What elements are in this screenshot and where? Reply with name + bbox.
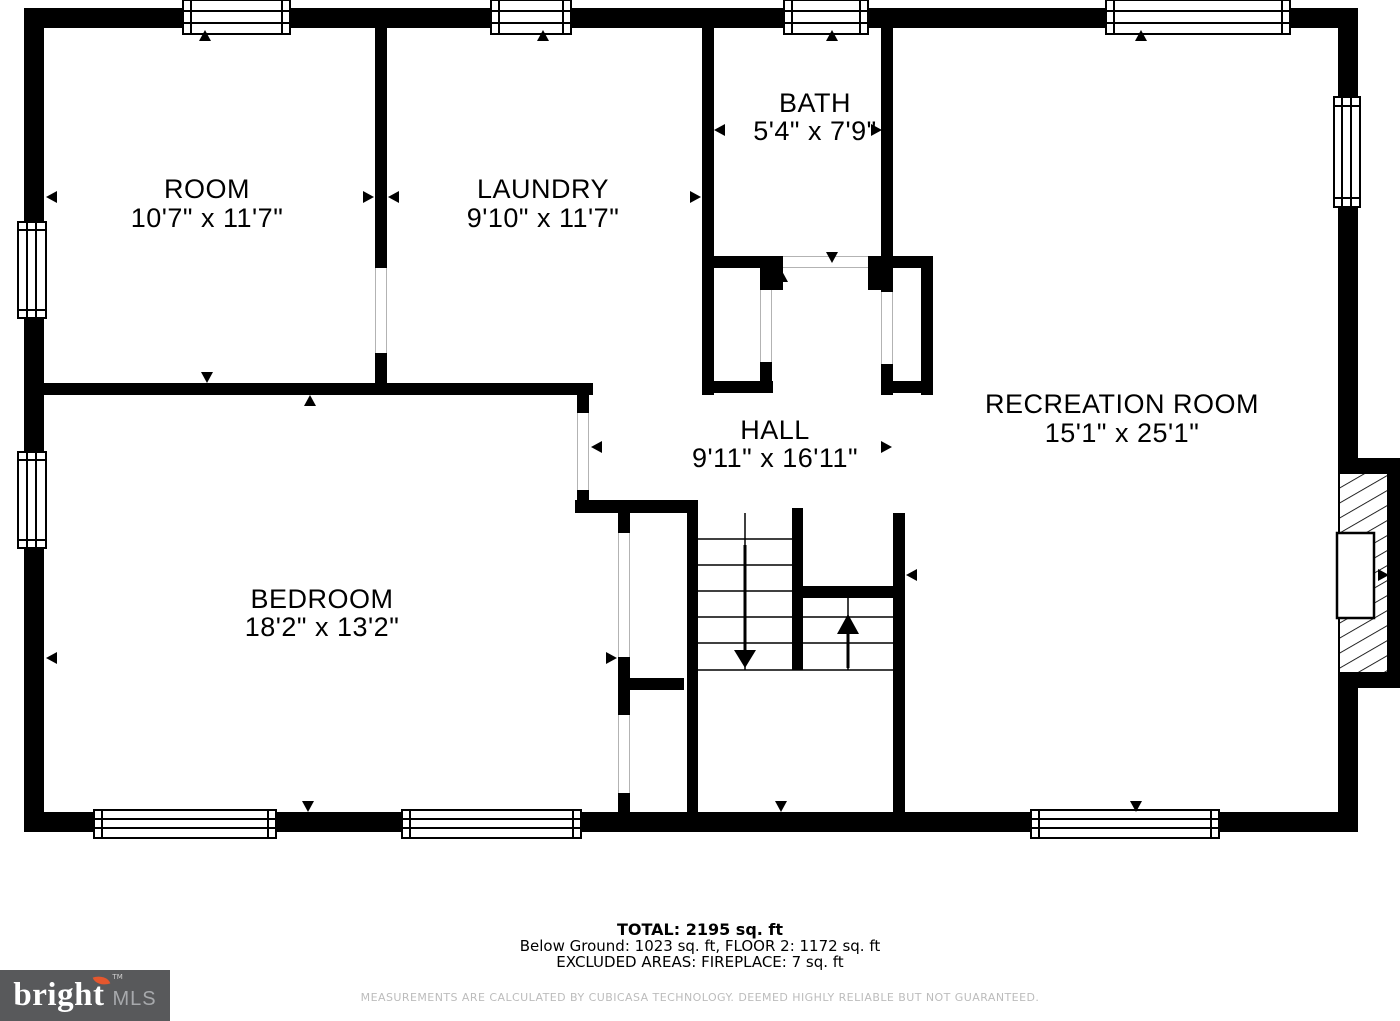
svg-text:10'7" x 11'7": 10'7" x 11'7"	[131, 203, 284, 233]
svg-text:9'10" x 11'7": 9'10" x 11'7"	[467, 203, 620, 233]
dim-arrow-right	[606, 652, 617, 664]
window-glyph	[491, 0, 571, 34]
window-glyph	[784, 0, 868, 34]
door-arrow-down	[201, 372, 213, 383]
window-glyph	[18, 222, 46, 318]
dim-arrow-right	[690, 191, 701, 203]
svg-text:HALL: HALL	[740, 415, 810, 445]
logo-mls-text: MLS	[112, 988, 156, 1011]
room-label-room: ROOM 10'7" x 11'7"	[131, 174, 284, 233]
dim-arrow-right	[881, 441, 892, 453]
door-arrow-down	[775, 801, 787, 812]
dim-arrow-left	[906, 569, 917, 581]
dim-arrow-left	[591, 441, 602, 453]
room-label-hall: HALL 9'11" x 16'11"	[692, 415, 858, 473]
window-glyph	[18, 452, 46, 548]
room-label-bedroom: BEDROOM 18'2" x 13'2"	[245, 584, 400, 642]
door-arrow-down	[826, 252, 838, 263]
window-glyph	[1031, 810, 1219, 838]
window-glyph	[402, 810, 581, 838]
window-glyph	[183, 0, 290, 34]
door-openings	[376, 257, 893, 794]
dim-arrow-left	[714, 124, 725, 136]
dim-arrow-left	[46, 652, 57, 664]
floor-plan-drawing: ROOM 10'7" x 11'7" LAUNDRY 9'10" x 11'7"…	[0, 0, 1400, 870]
window-glyph	[1334, 97, 1360, 207]
svg-text:18'2" x 13'2": 18'2" x 13'2"	[245, 612, 400, 642]
svg-text:15'1" x 25'1": 15'1" x 25'1"	[1045, 418, 1200, 448]
svg-text:LAUNDRY: LAUNDRY	[477, 174, 609, 204]
window-glyph	[1106, 0, 1290, 34]
stairs-down	[698, 513, 792, 670]
svg-text:BATH: BATH	[779, 88, 851, 118]
firebox	[1337, 533, 1374, 618]
dim-arrow-left	[46, 191, 57, 203]
floor-plan-page: ROOM 10'7" x 11'7" LAUNDRY 9'10" x 11'7"…	[0, 0, 1400, 1021]
bright-mls-logo: bright TM MLS	[0, 970, 170, 1021]
room-label-bath: BATH 5'4" x 7'9"	[753, 88, 877, 146]
excluded-areas: EXCLUDED AREAS: FIREPLACE: 7 sq. ft	[0, 954, 1400, 970]
room-label-laundry: LAUNDRY 9'10" x 11'7"	[467, 174, 620, 233]
svg-text:BEDROOM: BEDROOM	[250, 584, 393, 614]
svg-text:9'11" x 16'11": 9'11" x 16'11"	[692, 443, 858, 473]
dim-arrow-right	[363, 191, 374, 203]
svg-text:5'4" x 7'9": 5'4" x 7'9"	[753, 116, 877, 146]
trademark-symbol: TM	[112, 973, 122, 981]
floor-plan: ROOM 10'7" x 11'7" LAUNDRY 9'10" x 11'7"…	[0, 0, 1400, 870]
stairs-down-arrow	[734, 650, 756, 668]
area-breakdown: Below Ground: 1023 sq. ft, FLOOR 2: 1172…	[0, 938, 1400, 954]
svg-text:ROOM: ROOM	[164, 174, 250, 204]
door-arrow-up	[304, 395, 316, 406]
logo-brand-text: bright	[13, 979, 104, 1012]
dim-arrow-left	[388, 191, 399, 203]
room-label-recreation: RECREATION ROOM 15'1" x 25'1"	[985, 389, 1259, 448]
window-glyph	[94, 810, 276, 838]
door-arrow-down	[302, 801, 314, 812]
total-area: TOTAL: 2195 sq. ft	[0, 921, 1400, 938]
fireplace	[1337, 458, 1400, 688]
svg-text:RECREATION ROOM: RECREATION ROOM	[985, 389, 1259, 419]
area-summary: TOTAL: 2195 sq. ft Below Ground: 1023 sq…	[0, 921, 1400, 970]
measurement-disclaimer: MEASUREMENTS ARE CALCULATED BY CUBICASA …	[0, 991, 1400, 1004]
